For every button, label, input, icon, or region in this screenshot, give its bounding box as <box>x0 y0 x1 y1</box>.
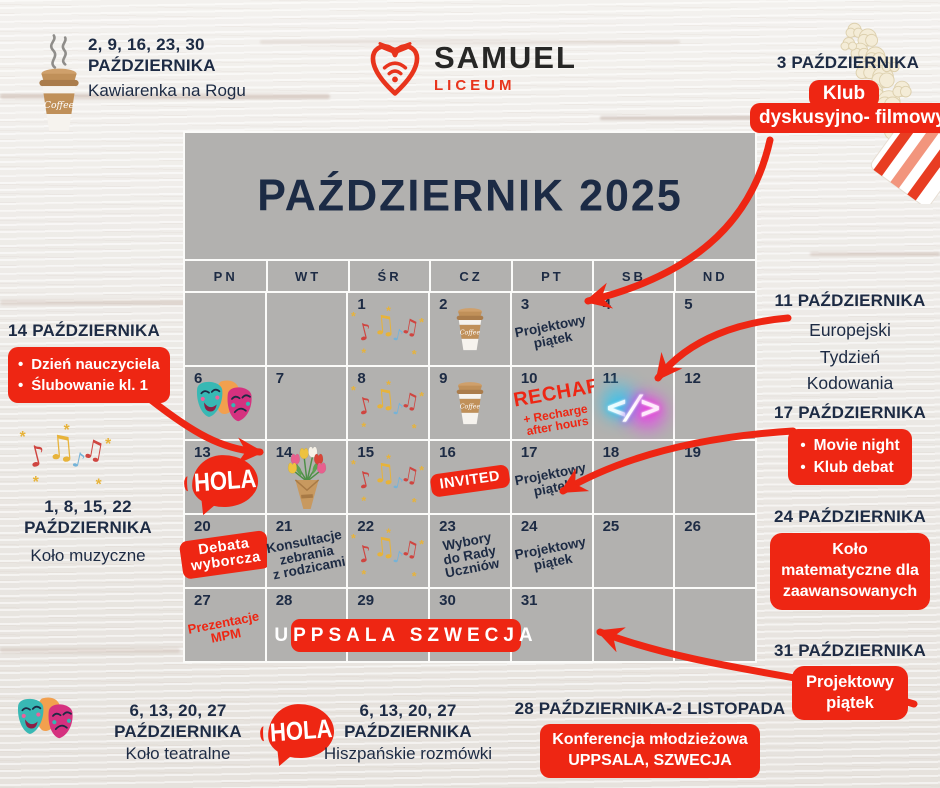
calendar-cell-4: 4 <box>594 293 674 365</box>
calendar-cell-12: 12 <box>675 367 755 439</box>
coffee-dates: 2, 9, 16, 23, 30 <box>88 34 318 55</box>
event-note: Konsultacjezebraniaz rodzicami <box>259 527 354 584</box>
coding-week-date: 11 PAŹDZIERNIKA <box>762 290 938 311</box>
film-club-badge: Klub dyskusyjno- filmowy <box>750 80 938 133</box>
tulip-bouquet-icon <box>286 446 328 515</box>
day-number: 24 <box>521 518 538 535</box>
calendar-grid: 1 ♪♫ ♪♫ *** **2 Coffee 3Projektowypiątek… <box>185 293 755 661</box>
calendar-cell-17: 17Projektowypiątek <box>512 441 592 513</box>
event-note: Projektowypiątek <box>505 460 598 504</box>
day-number: 28 <box>276 592 293 609</box>
svg-text:Coffee: Coffee <box>44 100 75 111</box>
svg-text:Coffee: Coffee <box>460 403 481 410</box>
samuel-heart-logo-icon <box>366 38 424 100</box>
theatre-club-annotation: 6, 13, 20, 27 PAŹDZIERNIKA Koło teatraln… <box>98 700 258 764</box>
coffee-month: PAŹDZIERNIKA <box>88 55 318 76</box>
film-club-date: 3 PAŹDZIERNIKA <box>768 52 928 73</box>
wood-streak <box>0 648 180 653</box>
logo-name: SAMUEL <box>434 42 577 73</box>
calendar-cell-25: 25 <box>594 515 674 587</box>
event-note: Projektowypiątek <box>505 534 598 578</box>
day-number: 2 <box>439 296 447 313</box>
calendar-cell-24: 24Projektowypiątek <box>512 515 592 587</box>
movie-night-date: 17 PAŹDZIERNIKA <box>762 402 938 423</box>
coding-week-line3: Kodowania <box>762 370 938 396</box>
wood-streak <box>810 252 940 256</box>
coding-week-line1: Europejski <box>762 317 938 343</box>
day-header-śr: ŚR <box>348 261 429 291</box>
day-number: 12 <box>684 370 701 387</box>
math-club-badge: Koło matematyczne dla zaawansowanych <box>770 533 930 609</box>
math-club-line1: Koło <box>778 540 922 561</box>
theatre-club-month: PAŹDZIERNIKA <box>98 721 258 742</box>
bullet: • <box>18 354 23 375</box>
logo-subtitle: LICEUM <box>434 77 577 96</box>
calendar-cell-11: 11 </> <box>594 367 674 439</box>
theatre-club-label: Koło teatralne <box>98 743 258 764</box>
teachers-day-badge: •Dzień nauczyciela •Ślubowanie kl. 1 <box>8 347 170 403</box>
day-header-pt: PT <box>511 261 592 291</box>
day-header-sb: SB <box>592 261 673 291</box>
day-number: 7 <box>276 370 284 387</box>
calendar-cell-3: 3Projektowypiątek <box>512 293 592 365</box>
teachers-day-item1: Dzień nauczyciela <box>31 354 159 375</box>
day-number: 5 <box>684 296 692 313</box>
math-club-line3: zaawansowanych <box>778 582 922 603</box>
math-club-annotation: 24 PAŹDZIERNIKA Koło matematyczne dla za… <box>762 506 938 610</box>
hola-speech-bubble-icon: HOLA <box>192 455 258 507</box>
math-club-date: 24 PAŹDZIERNIKA <box>762 506 938 527</box>
project-friday-line1: Projektowy <box>806 672 894 693</box>
day-number: 10 <box>521 370 538 387</box>
day-number: 23 <box>439 518 456 535</box>
music-notes-icon: ♪♫ ♪♫ *** ** <box>356 311 420 355</box>
day-number: 29 <box>357 592 374 609</box>
day-number: 20 <box>194 518 211 535</box>
film-club-badge-line2: dyskusyjno- filmowy <box>750 103 940 133</box>
calendar-cell-8: 8 ♪♫ ♪♫ *** ** <box>348 367 428 439</box>
event-note: Projektowypiątek <box>505 312 598 356</box>
day-number: 9 <box>439 370 447 387</box>
theater-masks-icon <box>14 694 102 770</box>
music-club-dates: 1, 8, 15, 22 <box>8 496 168 517</box>
conference-line2: UPPSALA, SZWECJA <box>552 751 748 772</box>
coffee-cup-icon: Coffee <box>449 378 491 435</box>
coffee-cup-icon: Coffee <box>449 304 491 361</box>
calendar-cell-21: 21Konsultacjezebraniaz rodzicami <box>267 515 347 587</box>
logo-text: SAMUEL LICEUM <box>434 42 577 96</box>
calendar-cell-19: 19 <box>675 441 755 513</box>
day-number: 30 <box>439 592 456 609</box>
day-number: 21 <box>276 518 293 535</box>
teachers-day-date: 14 PAŹDZIERNIKA <box>8 320 176 341</box>
day-number: 25 <box>603 518 620 535</box>
calendar-cell-27: 27PrezentacjeMPM <box>185 589 265 661</box>
coding-week-lines: Europejski Tydzień Kodowania <box>762 317 938 396</box>
movie-night-item2: Klub debat <box>814 457 894 479</box>
music-notes-icon: ♪♫ ♪♫ *** ** <box>26 430 106 485</box>
day-number: 16 <box>439 444 456 461</box>
coding-week-line2: Tydzień <box>762 344 938 370</box>
day-number: 26 <box>684 518 701 535</box>
day-header-cz: CZ <box>429 261 510 291</box>
theater-masks-icon <box>193 377 257 437</box>
calendar: PAŹDZIERNIK 2025 PNWTŚRCZPTSBND 1 ♪♫ ♪♫ … <box>183 131 757 663</box>
calendar-cell-empty <box>594 589 674 661</box>
calendar-cell-16: 16INVITED <box>430 441 510 513</box>
teachers-day-annotation: 14 PAŹDZIERNIKA •Dzień nauczyciela •Ślub… <box>8 320 176 403</box>
event-badge: INVITED <box>429 464 510 498</box>
calendar-cell-5: 5 <box>675 293 755 365</box>
music-notes-icon: ♪♫ ♪♫ *** ** <box>356 533 420 577</box>
day-number: 27 <box>194 592 211 609</box>
coffee-cup-icon: Coffee <box>28 28 90 136</box>
calendar-cell-18: 18 <box>594 441 674 513</box>
day-header-wt: WT <box>266 261 347 291</box>
project-friday-badge: Projektowy piątek <box>792 666 908 719</box>
project-friday-line2: piątek <box>806 693 894 714</box>
day-number: 19 <box>684 444 701 461</box>
calendar-cell-13: 13HOLA <box>185 441 265 513</box>
conference-date: 28 PAŹDZIERNIKA-2 LISTOPADA <box>504 698 796 719</box>
coffee-label: Kawiarenka na Rogu <box>88 80 318 101</box>
event-note: PrezentacjeMPM <box>179 608 272 651</box>
spanish-talks-month: PAŹDZIERNIKA <box>322 721 494 742</box>
spanish-talks-dates: 6, 13, 20, 27 <box>322 700 494 721</box>
coffee-annotation: 2, 9, 16, 23, 30 PAŹDZIERNIKA Kawiarenka… <box>88 34 318 101</box>
day-header-pn: PN <box>185 261 266 291</box>
teachers-day-item2: Ślubowanie kl. 1 <box>31 375 148 396</box>
math-club-line2: matematyczne dla <box>778 561 922 582</box>
calendar-cell-26: 26 <box>675 515 755 587</box>
samuel-logo: SAMUEL LICEUM <box>366 36 586 102</box>
day-number: 4 <box>603 296 611 313</box>
calendar-cell-1: 1 ♪♫ ♪♫ *** ** <box>348 293 428 365</box>
day-header-nd: ND <box>674 261 755 291</box>
calendar-cell-empty <box>267 293 347 365</box>
project-friday-date: 31 PAŹDZIERNIKA <box>762 640 938 661</box>
day-number: 18 <box>603 444 620 461</box>
conference-line1: Konferencja młodzieżowa <box>552 730 748 751</box>
calendar-cell-9: 9 Coffee <box>430 367 510 439</box>
music-notes-icon: ♪♫ ♪♫ *** ** <box>356 385 420 429</box>
wood-streak <box>0 300 190 305</box>
music-notes-icon: ♪♫ ♪♫ *** ** <box>356 459 420 503</box>
music-club-label: Koło muzyczne <box>8 545 168 566</box>
uppsala-trip-badge: UPPSALA SZWECJA <box>291 619 521 652</box>
calendar-cell-20: 20Debatawyborcza <box>185 515 265 587</box>
day-header-row: PNWTŚRCZPTSBND <box>185 259 755 293</box>
movie-night-item1: Movie night <box>814 435 900 457</box>
calendar-cell-6: 6 <box>185 367 265 439</box>
calendar-title: PAŹDZIERNIK 2025 <box>185 130 755 261</box>
svg-text:Coffee: Coffee <box>460 329 481 336</box>
conference-badge: Konferencja młodzieżowa UPPSALA, SZWECJA <box>540 724 760 778</box>
spanish-talks-annotation: 6, 13, 20, 27 PAŹDZIERNIKA Hiszpańskie r… <box>322 700 494 764</box>
calendar-cell-2: 2 Coffee <box>430 293 510 365</box>
event-note: Wyborydo RadyUczniów <box>422 527 517 584</box>
music-club-month: PAŹDZIERNIKA <box>8 517 168 538</box>
theatre-club-dates: 6, 13, 20, 27 <box>98 700 258 721</box>
calendar-cell-22: 22 ♪♫ ♪♫ *** ** <box>348 515 428 587</box>
music-club-annotation: 1, 8, 15, 22 PAŹDZIERNIKA Koło muzyczne <box>8 496 168 566</box>
coding-week-annotation: 11 PAŹDZIERNIKA Europejski Tydzień Kodow… <box>762 290 938 396</box>
calendar-cell-empty <box>185 293 265 365</box>
spanish-talks-label: Hiszpańskie rozmówki <box>322 743 494 764</box>
calendar-cell-23: 23Wyborydo RadyUczniów <box>430 515 510 587</box>
movie-night-badge: •Movie night •Klub debat <box>788 429 911 484</box>
movie-night-annotation: 17 PAŹDZIERNIKA •Movie night •Klub debat <box>762 402 938 485</box>
calendar-cell-10: 10RECHARGE+ Rechargeafter hours <box>512 367 592 439</box>
code-neon-icon: </> <box>607 390 661 423</box>
calendar-cell-14: 14 <box>267 441 347 513</box>
calendar-cell-empty <box>675 589 755 661</box>
calendar-cell-15: 15 ♪♫ ♪♫ *** ** <box>348 441 428 513</box>
bullet: • <box>18 375 23 396</box>
conference-annotation: 28 PAŹDZIERNIKA-2 LISTOPADA Konferencja … <box>504 698 796 778</box>
day-number: 17 <box>521 444 538 461</box>
bullet: • <box>800 457 805 478</box>
event-badge: Debatawyborcza <box>179 529 272 579</box>
bullet: • <box>800 435 805 456</box>
calendar-cell-7: 7 <box>267 367 347 439</box>
day-number: 31 <box>521 592 538 609</box>
day-number: 3 <box>521 296 529 313</box>
